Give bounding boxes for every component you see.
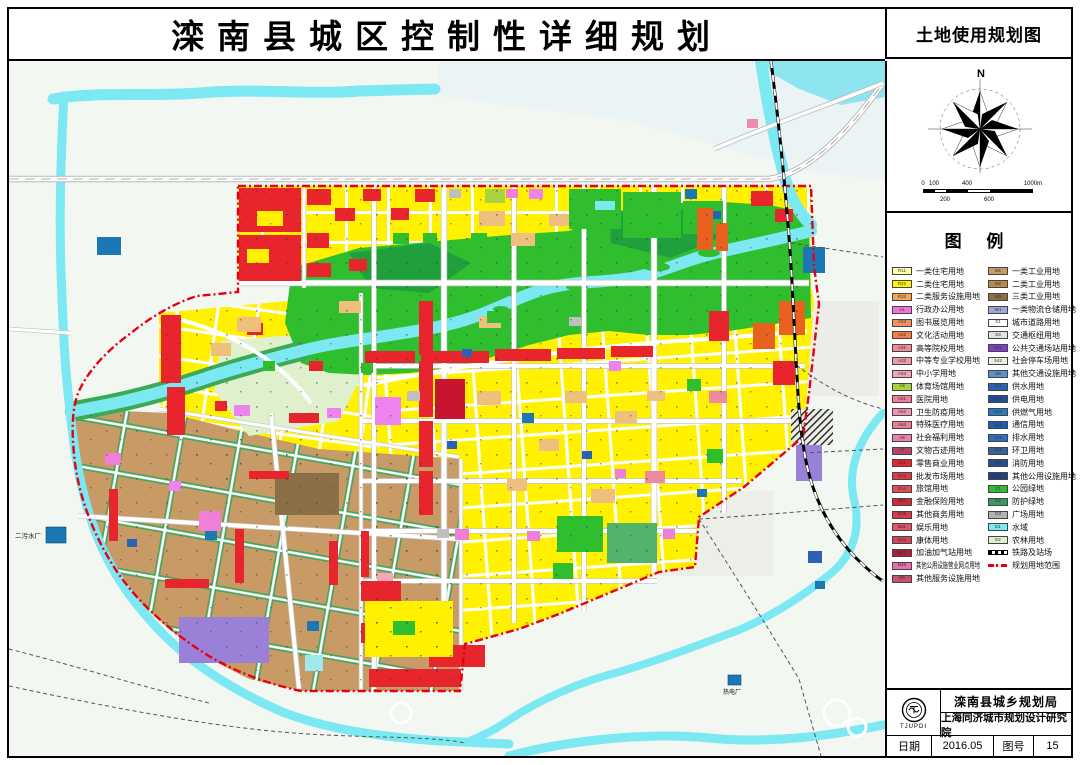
legend-item: A7文物古迹用地 [892, 444, 986, 457]
legend-label: 其他交通设施用地 [1012, 368, 1076, 379]
parcel [747, 119, 758, 128]
legend-swatch: B41 [892, 549, 912, 557]
sheet-subtitle: 土地使用规划图 [916, 21, 1042, 46]
legend-swatch: R11 [892, 267, 912, 275]
power-plant-label: 热电厂 [723, 688, 741, 696]
sheet-subtitle-cell: 土地使用规划图 [885, 9, 1071, 59]
legend-item: A23图书展览用地 [892, 316, 986, 329]
legend-label: 铁路及站场 [1012, 547, 1052, 558]
page-title: 滦南县城区控制性详细规划 [171, 10, 723, 58]
legend-label: 卫生防疫用地 [916, 407, 964, 418]
legend-swatch: R21 [892, 280, 912, 288]
legend-item: S3交通枢纽用地 [988, 329, 1072, 342]
sidebar: N 01004001000m 200600 图 例 R11一类住宅用地R21二类… [885, 61, 1071, 756]
legend-item: A6社会福利用地 [892, 431, 986, 444]
legend-swatch: G3 [988, 511, 1008, 519]
legend-label: 公园绿地 [1012, 483, 1044, 494]
legend-item: B11零售商业用地 [892, 457, 986, 470]
legend-swatch: B31 [892, 523, 912, 531]
legend-label: 文物古迹用地 [916, 445, 964, 456]
legend-swatch: A53 [892, 421, 912, 429]
legend-item: U31消防用地 [988, 457, 1072, 470]
title-bar: 滦南县城区控制性详细规划 [9, 9, 885, 61]
legend-swatch: S42 [988, 357, 1008, 365]
railway-symbol [988, 550, 1008, 555]
legend-label: 特殊医疗用地 [916, 419, 964, 430]
legend-label: 二类工业用地 [1012, 279, 1060, 290]
legend-item: U15通信用地 [988, 419, 1072, 432]
legend-item: B49其他公用设施营业网点用地 [892, 559, 986, 572]
legend-swatch: A7 [892, 447, 912, 455]
legend-label: 零售商业用地 [916, 458, 964, 469]
legend-swatch: G1 [988, 485, 1008, 493]
legend-label: 文化活动用地 [916, 330, 964, 341]
legend-label: 城市道路用地 [1012, 317, 1060, 328]
legend-item: B9其他服务设施用地 [892, 572, 986, 585]
legend-label: 中小学用地 [916, 368, 956, 379]
legend-item: G1公园绿地 [988, 483, 1072, 496]
legend-label: 一类住宅用地 [916, 266, 964, 277]
legend-column-left: R11一类住宅用地R21二类住宅用地R22二类服务设施用地A1行政办公用地A23… [892, 265, 986, 585]
legend-swatch: A22 [892, 331, 912, 339]
legend-item: B31娱乐用地 [892, 521, 986, 534]
legend-swatch: M1 [988, 267, 1008, 275]
title-block: TJUPDI 滦南县城乡规划局 上海同济城市规划设计研究院 日期 2016.05… [887, 688, 1071, 756]
legend-swatch: A32 [892, 357, 912, 365]
legend-item: A4体育场馆用地 [892, 380, 986, 393]
legend-label: 二类住宅用地 [916, 279, 964, 290]
legend-box: 图 例 R11一类住宅用地R21二类住宅用地R22二类服务设施用地A1行政办公用… [887, 213, 1071, 686]
hatched-site [791, 409, 833, 445]
legend-label: 中等专业学校用地 [916, 355, 980, 366]
legend-item: S42社会停车场用地 [988, 355, 1072, 368]
legend-column-right: M1一类工业用地M2二类工业用地M3三类工业用地W1一类物流仓储用地S1城市道路… [988, 265, 1072, 572]
scale-bar-segments [923, 189, 1033, 193]
legend-label: 农林用地 [1012, 535, 1044, 546]
legend-item: B41加油加气站用地 [892, 547, 986, 560]
legend-item: B29其他商务用地 [892, 508, 986, 521]
legend-item: M2二类工业用地 [988, 278, 1072, 291]
date-value: 2016.05 [931, 736, 993, 756]
legend-swatch: A1 [892, 306, 912, 314]
legend-swatch: A51 [892, 395, 912, 403]
legend-swatch: A52 [892, 408, 912, 416]
legend-swatch: U13 [988, 408, 1008, 416]
legend-swatch: G2 [988, 498, 1008, 506]
legend-label: 规划用地范围 [1012, 560, 1060, 571]
legend-item: B12批发市场用地 [892, 470, 986, 483]
legend-swatch: E2 [988, 536, 1008, 544]
legend-swatch: B11 [892, 459, 912, 467]
legend-label: 供水用地 [1012, 381, 1044, 392]
legend-swatch: S9 [988, 370, 1008, 378]
legend-label: 交通枢纽用地 [1012, 330, 1060, 341]
legend-title: 图 例 [887, 227, 1071, 252]
legend-label: 供燃气用地 [1012, 407, 1052, 418]
legend-item: S9其他交通设施用地 [988, 367, 1072, 380]
legend-label: 通信用地 [1012, 419, 1044, 430]
legend-swatch: U9 [988, 472, 1008, 480]
legend-swatch: U22 [988, 447, 1008, 455]
legend-label: 社会福利用地 [916, 432, 964, 443]
legend-label: 娱乐用地 [916, 522, 948, 533]
legend-item: R21二类住宅用地 [892, 278, 986, 291]
legend-item: A32中等专业学校用地 [892, 355, 986, 368]
legend-item: E1水域 [988, 521, 1072, 534]
legend-swatch: U15 [988, 421, 1008, 429]
plan-sheet: 滦南县城区控制性详细规划 土地使用规划图 [7, 7, 1073, 758]
legend-label: 图书展览用地 [916, 317, 964, 328]
scale-bar: 01004001000m 200600 [923, 181, 1035, 207]
legend-item: U11供水用地 [988, 380, 1072, 393]
legend-swatch: R22 [892, 293, 912, 301]
parcel [97, 237, 121, 255]
legend-item: U21排水用地 [988, 431, 1072, 444]
legend-swatch: B32 [892, 536, 912, 544]
legend-swatch: U12 [988, 395, 1008, 403]
legend-label: 金融保险用地 [916, 496, 964, 507]
legend-label: 水域 [1012, 522, 1028, 533]
legend-label: 旅馆用地 [916, 483, 948, 494]
legend-label: 防护绿地 [1012, 496, 1044, 507]
legend-swatch: B12 [892, 472, 912, 480]
tjupdi-logo-icon [901, 697, 927, 723]
legend-swatch: S3 [988, 331, 1008, 339]
legend-swatch: U11 [988, 383, 1008, 391]
legend-item: S1城市道路用地 [988, 316, 1072, 329]
logo-cell: TJUPDI [887, 690, 941, 737]
legend-label: 行政办公用地 [916, 304, 964, 315]
legend-label: 高等院校用地 [916, 343, 964, 354]
legend-label: 批发市场用地 [916, 471, 964, 482]
legend-item: S41公共交通场站用地 [988, 342, 1072, 355]
legend-swatch: B14 [892, 485, 912, 493]
legend-label: 康体用地 [916, 535, 948, 546]
legend-item: A52卫生防疫用地 [892, 406, 986, 419]
legend-label: 二类服务设施用地 [916, 291, 980, 302]
legend-label: 一类工业用地 [1012, 266, 1060, 277]
legend-label: 三类工业用地 [1012, 291, 1060, 302]
legend-label: 社会停车场用地 [1012, 355, 1068, 366]
legend-label: 其他商务用地 [916, 509, 964, 520]
legend-swatch: A31 [892, 344, 912, 352]
legend-swatch: B29 [892, 511, 912, 519]
legend-label: 加油加气站用地 [916, 547, 972, 558]
legend-label: 体育场馆用地 [916, 381, 964, 392]
legend-label: 医院用地 [916, 394, 948, 405]
legend-swatch: U31 [988, 459, 1008, 467]
parcel [815, 581, 825, 589]
legend-item: A33中小学用地 [892, 367, 986, 380]
legend-item: E2农林用地 [988, 534, 1072, 547]
institute-name: 上海同济城市规划设计研究院 [941, 713, 1071, 737]
legend-swatch: S41 [988, 344, 1008, 352]
compass-box: N 01004001000m 200600 [887, 61, 1071, 213]
legend-item: 规划用地范围 [988, 559, 1072, 572]
legend-item: 铁路及站场 [988, 547, 1072, 560]
north-label: N [977, 68, 985, 80]
legend-item: B32康体用地 [892, 534, 986, 547]
legend-swatch: A23 [892, 319, 912, 327]
legend-label: 供电用地 [1012, 394, 1044, 405]
legend-item: G3广场用地 [988, 508, 1072, 521]
date-sheet-row: 日期 2016.05 图号 15 [887, 735, 1071, 756]
legend-item: U9其他公用设施用地 [988, 470, 1072, 483]
legend-item: B14旅馆用地 [892, 483, 986, 496]
legend-label: 其他公用设施营业网点用地 [916, 560, 980, 571]
legend-item: U12供电用地 [988, 393, 1072, 406]
legend-item: G2防护绿地 [988, 495, 1072, 508]
legend-label: 环卫用地 [1012, 445, 1044, 456]
wind-rose [942, 91, 1018, 167]
legend-label: 广场用地 [1012, 509, 1044, 520]
legend-item: R22二类服务设施用地 [892, 291, 986, 304]
power-plant-site [728, 675, 741, 685]
legend-swatch: W1 [988, 306, 1008, 314]
legend-label: 其他公用设施用地 [1012, 471, 1076, 482]
legend-item: R11一类住宅用地 [892, 265, 986, 278]
legend-label: 排水用地 [1012, 432, 1044, 443]
map-area: 二污水厂 热电厂 [9, 61, 885, 756]
sewage-plant-site [46, 527, 66, 543]
legend-item: A22文化活动用地 [892, 329, 986, 342]
logo-text: TJUPDI [900, 724, 927, 730]
legend-item: W1一类物流仓储用地 [988, 303, 1072, 316]
legend-swatch: E1 [988, 523, 1008, 531]
sheet-number-label: 图号 [993, 736, 1033, 756]
boundary-symbol [988, 564, 1008, 567]
legend-label: 消防用地 [1012, 458, 1044, 469]
legend-swatch: M2 [988, 280, 1008, 288]
legend-label: 其他服务设施用地 [916, 573, 980, 584]
legend-item: M1一类工业用地 [988, 265, 1072, 278]
date-label: 日期 [887, 736, 931, 756]
legend-item: B21金融保险用地 [892, 495, 986, 508]
legend-swatch: B9 [892, 575, 912, 583]
map-canvas: 二污水厂 热电厂 [9, 61, 885, 756]
sewage-plant-label: 二污水厂 [15, 531, 42, 540]
sheet-number-value: 15 [1033, 736, 1071, 756]
legend-swatch: M3 [988, 293, 1008, 301]
legend-label: 一类物流仓储用地 [1012, 304, 1076, 315]
legend-swatch: S1 [988, 319, 1008, 327]
legend-swatch: A33 [892, 370, 912, 378]
legend-swatch: B21 [892, 498, 912, 506]
parcel [808, 551, 822, 563]
legend-item: A53特殊医疗用地 [892, 419, 986, 432]
legend-swatch: U21 [988, 434, 1008, 442]
legend-item: A1行政办公用地 [892, 303, 986, 316]
compass-rose: N [887, 61, 1073, 179]
legend-item: A31高等院校用地 [892, 342, 986, 355]
legend-item: M3三类工业用地 [988, 291, 1072, 304]
legend-item: U13供燃气用地 [988, 406, 1072, 419]
legend-item: U22环卫用地 [988, 444, 1072, 457]
legend-swatch: B49 [892, 562, 912, 570]
legend-item: A51医院用地 [892, 393, 986, 406]
legend-swatch: A6 [892, 434, 912, 442]
legend-label: 公共交通场站用地 [1012, 343, 1076, 354]
legend-swatch: A4 [892, 383, 912, 391]
